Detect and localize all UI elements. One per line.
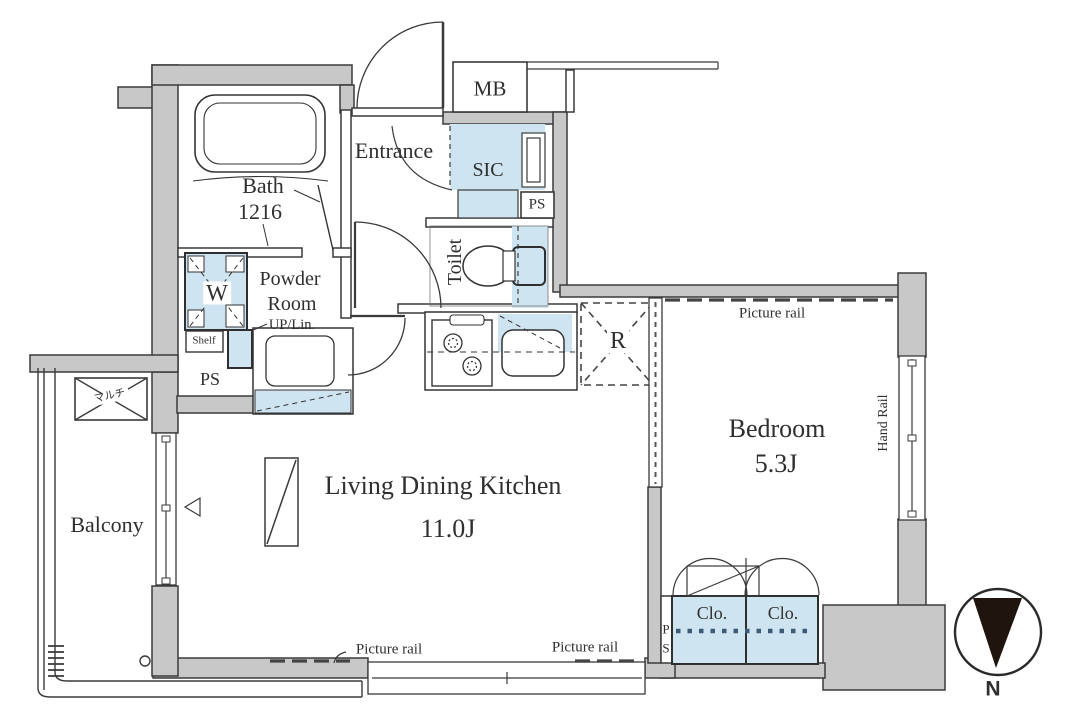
label-bath-size: 1216 (238, 201, 282, 223)
label-sic: SIC (472, 160, 503, 180)
bath-door-leaf (318, 185, 333, 250)
ldk-counter-symbol (265, 458, 298, 546)
label-ps-entrance: PS (529, 198, 546, 213)
hall-door-arc (348, 318, 405, 375)
label-bedroom-area: 5.3J (755, 451, 798, 477)
compass (955, 589, 1041, 675)
label-closet-right: Clo. (768, 604, 799, 622)
label-refrigerator: R (607, 329, 629, 353)
label-picture-rail-ldk-right: Picture rail (552, 641, 618, 656)
label-compass-north: N (985, 679, 1000, 700)
balcony-window (156, 433, 200, 585)
label-balcony: Balcony (70, 514, 143, 536)
wash-basin (251, 324, 353, 414)
label-bath: Bath (242, 175, 284, 197)
floor-plan-drawing (0, 0, 1070, 719)
label-powder-room-1: Powder (259, 269, 320, 289)
label-bedroom: Bedroom (729, 416, 826, 442)
label-meter-box: MB (474, 79, 507, 100)
label-ps-powder: PS (200, 370, 220, 388)
label-ps-bedroom-s: S (662, 642, 669, 655)
stove (432, 320, 492, 386)
sliding-partition (649, 298, 662, 487)
bath-label-leader (294, 190, 320, 202)
closet-doors (673, 558, 819, 596)
label-up-lin: UP/Lin. (269, 318, 315, 333)
label-shelf: Shelf (192, 336, 215, 347)
label-ps-bedroom-p: P (662, 623, 669, 636)
label-picture-rail-bedroom: Picture rail (739, 307, 805, 322)
label-closet-left: Clo. (697, 604, 728, 622)
ldk-bottom-window (368, 662, 645, 694)
kitchen-sink (502, 330, 564, 376)
bath-size-leader (263, 224, 268, 246)
kitchen-counter (425, 312, 577, 390)
drain-icon (140, 656, 150, 666)
label-washing-machine: W (203, 282, 231, 305)
label-picture-rail-ldk-left: Picture rail (356, 643, 422, 658)
label-powder-room-2: Room (268, 294, 317, 314)
front-door-arc (357, 22, 443, 108)
label-ldk: Living Dining Kitchen (325, 473, 562, 499)
label-toilet: Toilet (445, 239, 465, 285)
partition-hatch (48, 646, 64, 676)
label-entrance: Entrance (355, 140, 433, 162)
bedroom-window (899, 356, 925, 520)
label-hand-rail: Hand Rail (877, 394, 891, 451)
toilet-door-arc (355, 222, 441, 308)
label-ldk-area: 11.0J (421, 516, 476, 542)
floor-plan-canvas: Entrance MB SIC PS Bath 1216 Toilet Powd… (0, 0, 1070, 719)
opening-direction-icon (185, 498, 200, 516)
